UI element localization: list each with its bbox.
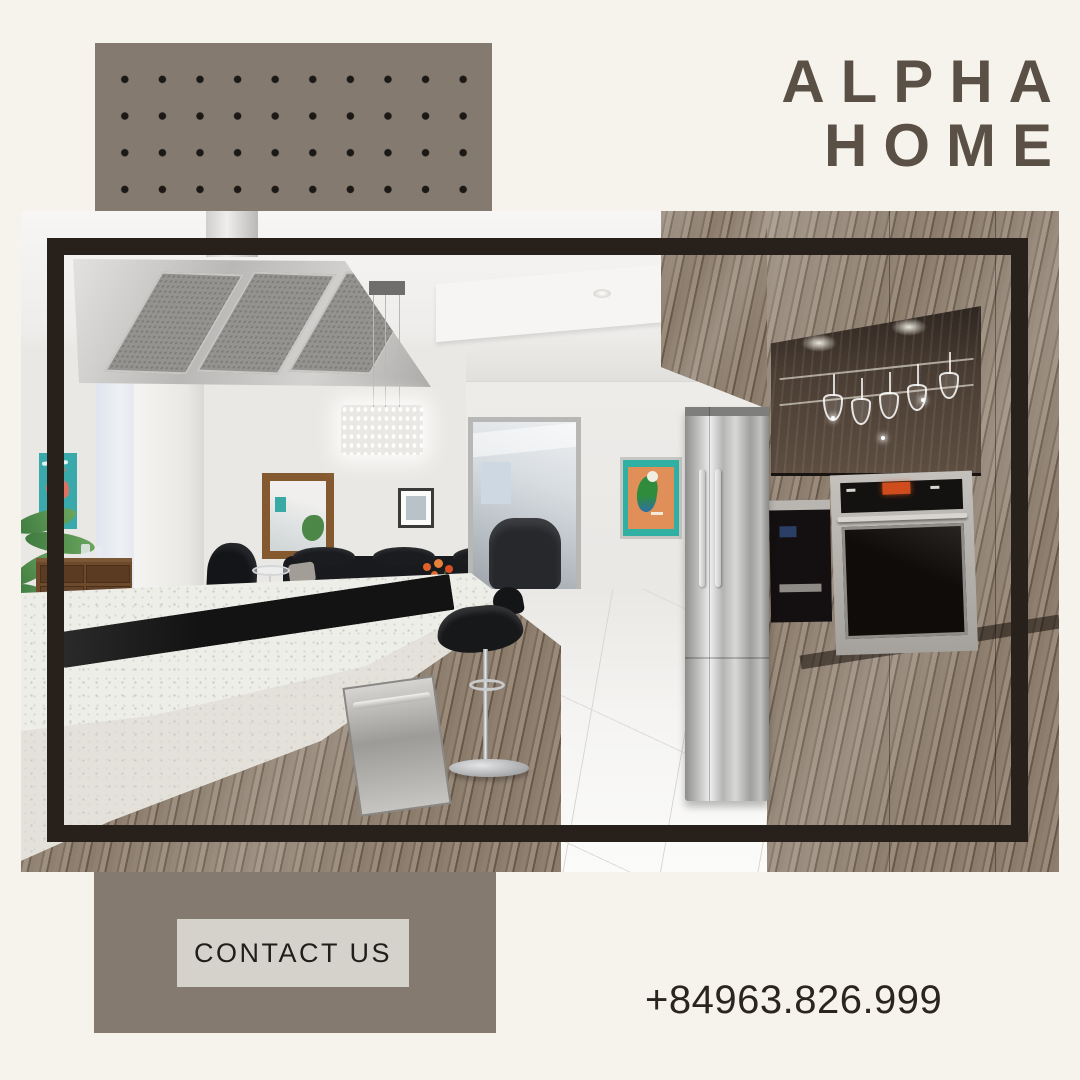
contact-us-button[interactable]: CONTACT US — [177, 919, 409, 987]
brand-line-1: ALPHA — [781, 50, 1068, 114]
phone-number: +84963.826.999 — [645, 978, 1005, 1023]
poster-canvas: ALPHA HOME — [0, 0, 1080, 1080]
taupe-block-top — [95, 43, 492, 211]
dot-grid-decoration — [106, 61, 483, 208]
brand-line-2: HOME — [781, 114, 1068, 178]
brand-title: ALPHA HOME — [781, 50, 1068, 178]
photo-frame — [47, 238, 1028, 842]
